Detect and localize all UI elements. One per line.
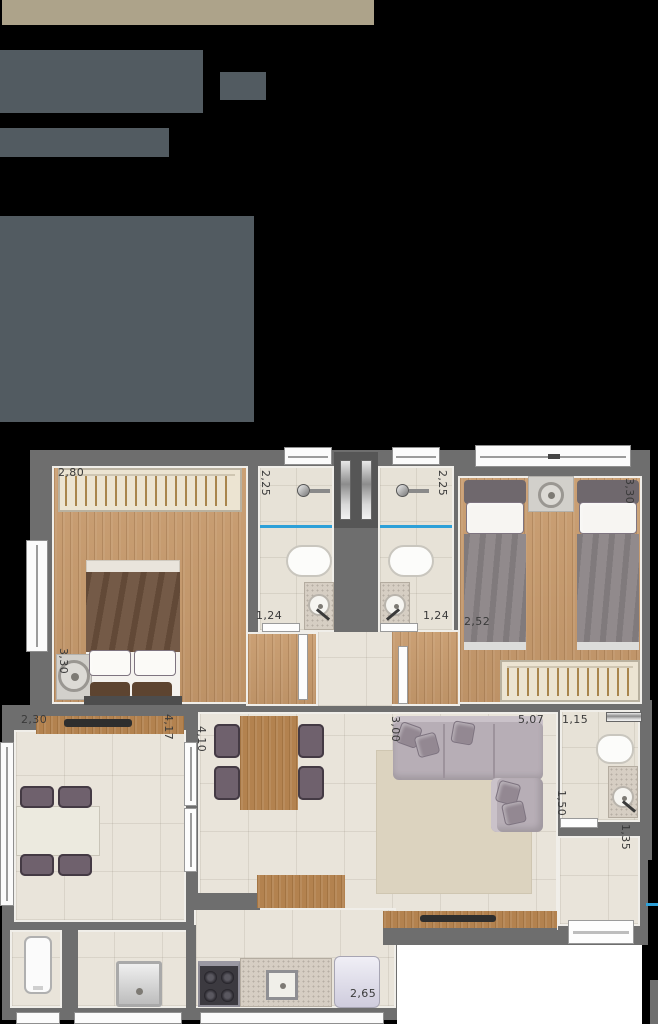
shower-glass-line <box>260 525 332 528</box>
dim-bath1-width: 1,24 <box>256 610 282 621</box>
bedroom2-window <box>475 445 631 467</box>
dining-chair <box>298 766 324 800</box>
lavabo-door <box>560 818 598 828</box>
bathroom2-door <box>380 623 418 632</box>
single-bed-base <box>577 642 639 650</box>
laundry-tub-icon <box>116 961 162 1007</box>
stove-icon <box>198 961 240 1007</box>
bathroom1-door <box>262 623 300 632</box>
dim-bath2-width: 1,24 <box>423 610 449 621</box>
refrigerator-icon <box>334 956 380 1008</box>
sofa-pillow <box>501 800 527 826</box>
balcony-chair <box>58 786 92 808</box>
header-title-block <box>0 50 203 113</box>
bed-headboard <box>84 696 182 705</box>
balcony-table <box>16 806 100 856</box>
bathroom1-window <box>284 447 332 465</box>
shaft-panel-icon <box>361 460 372 520</box>
shower-arm-icon <box>310 489 330 493</box>
dim-bedroom1-width: 2,80 <box>58 467 84 478</box>
dim-living-length: 4,10 <box>196 726 207 752</box>
shower-glass-line <box>380 525 452 528</box>
dim-balcony-length: 4,17 <box>163 714 174 740</box>
lamp-icon <box>538 482 564 508</box>
wall-kitchen-stub <box>194 893 260 910</box>
neighbor-wall-fragment <box>650 980 658 1024</box>
floor-plan-page: 2,80 3,30 2,25 2,25 1,24 1,24 3,30 2,52 … <box>0 0 658 1024</box>
sink-icon <box>612 786 634 808</box>
toilet-icon <box>388 545 434 577</box>
kitchen-island <box>257 875 345 908</box>
bedroom1-door <box>298 634 308 700</box>
dim-bedroom1-depth: 3,30 <box>58 648 69 674</box>
dim-bedroom2-depth: 3,30 <box>624 478 635 504</box>
toilet-icon <box>596 734 634 764</box>
dim-bedroom2-entry: 2,52 <box>464 616 490 627</box>
dining-chair <box>214 724 240 758</box>
sliding-door-panel <box>184 808 197 872</box>
bed-pillow <box>134 650 176 676</box>
dim-balcony-width: 2,30 <box>21 714 47 725</box>
balcony-window <box>0 742 14 906</box>
shower-arm-icon <box>409 489 429 493</box>
dim-lavabo-width: 1,15 <box>562 714 588 725</box>
single-bed-base <box>464 642 526 650</box>
toilet-icon <box>286 545 332 577</box>
water-heater-icon <box>24 936 52 994</box>
dim-entry-hall: 1,35 <box>620 824 631 850</box>
wall-living-bottom <box>383 928 557 945</box>
tv-icon <box>64 719 132 727</box>
wall-kitchen-divider <box>186 925 196 1010</box>
dim-living-width: 5,07 <box>518 714 544 725</box>
single-bed-accent-pillow <box>464 480 526 504</box>
balcony-chair <box>20 786 54 808</box>
dim-bath2-depth: 2,25 <box>437 470 448 496</box>
shower-icon <box>396 484 409 497</box>
hallway-floor <box>318 632 392 706</box>
mirror-icon <box>606 712 642 722</box>
bed-pillow <box>89 650 131 676</box>
hanger-icons <box>507 666 633 696</box>
wall-service-divider <box>62 925 78 1010</box>
bottom-window-1 <box>16 1012 60 1024</box>
bathroom2-window <box>392 447 440 465</box>
outside-area <box>397 945 642 1024</box>
bedroom2-wardrobe <box>500 660 640 702</box>
sofa-pillow <box>450 720 475 745</box>
balcony-chair <box>58 854 92 876</box>
entry-door <box>568 920 634 944</box>
neighbor-glass-line <box>646 903 658 906</box>
shaft-panel-icon <box>340 460 351 520</box>
header-subtitle-block <box>0 128 169 157</box>
dim-kitchen-width: 2,65 <box>350 988 376 999</box>
bedroom1-wardrobe <box>58 468 242 512</box>
header-description-block <box>0 216 254 422</box>
single-bed-blanket <box>577 534 639 644</box>
dining-chair <box>214 766 240 800</box>
balcony-chair <box>20 854 54 876</box>
tv-icon <box>420 915 496 922</box>
header-small-block <box>220 72 266 100</box>
shower-icon <box>297 484 310 497</box>
dining-table <box>240 716 298 810</box>
bed-pillow <box>466 502 524 534</box>
bottom-window-3 <box>200 1012 384 1024</box>
kitchen-sink-icon <box>266 970 298 1000</box>
dim-bath1-depth: 2,25 <box>260 470 271 496</box>
dim-sofa-wall: 3,00 <box>390 716 401 742</box>
bedroom1-side-window <box>26 540 48 652</box>
header-banner <box>2 0 374 25</box>
hanger-icons <box>65 474 235 506</box>
bottom-window-2 <box>74 1012 182 1024</box>
bed-pillow <box>579 502 637 534</box>
double-bed-blanket <box>86 572 180 654</box>
dim-lavabo-depth: 1,50 <box>556 790 567 816</box>
bedroom2-door <box>398 646 408 704</box>
dining-chair <box>298 724 324 758</box>
